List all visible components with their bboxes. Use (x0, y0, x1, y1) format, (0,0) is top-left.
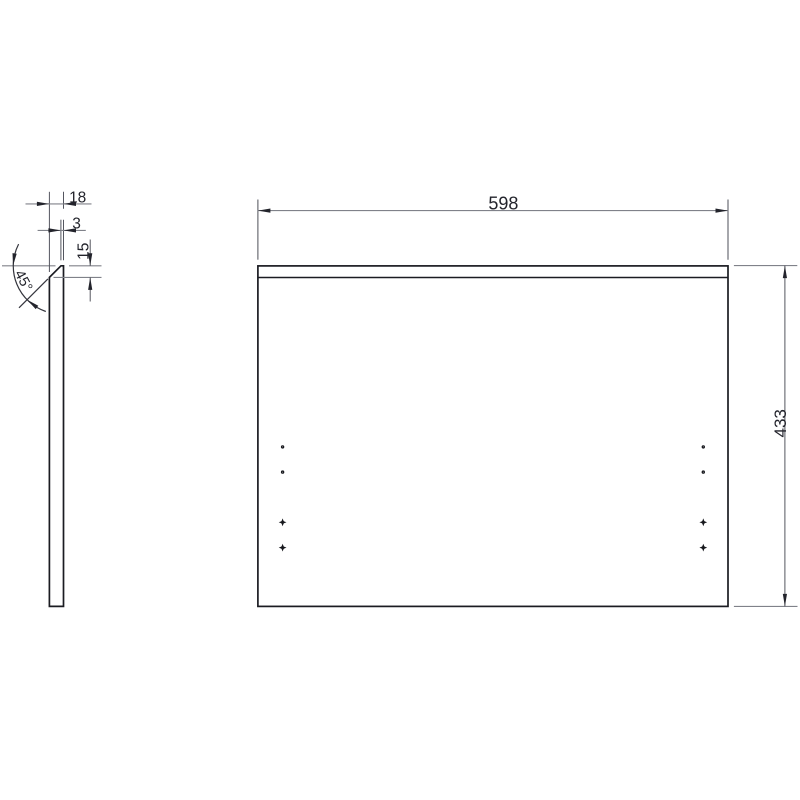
svg-text:15: 15 (76, 243, 93, 260)
svg-text:3: 3 (72, 216, 81, 233)
svg-text:433: 433 (771, 409, 790, 437)
svg-text:598: 598 (488, 194, 518, 214)
svg-text:18: 18 (69, 190, 86, 207)
